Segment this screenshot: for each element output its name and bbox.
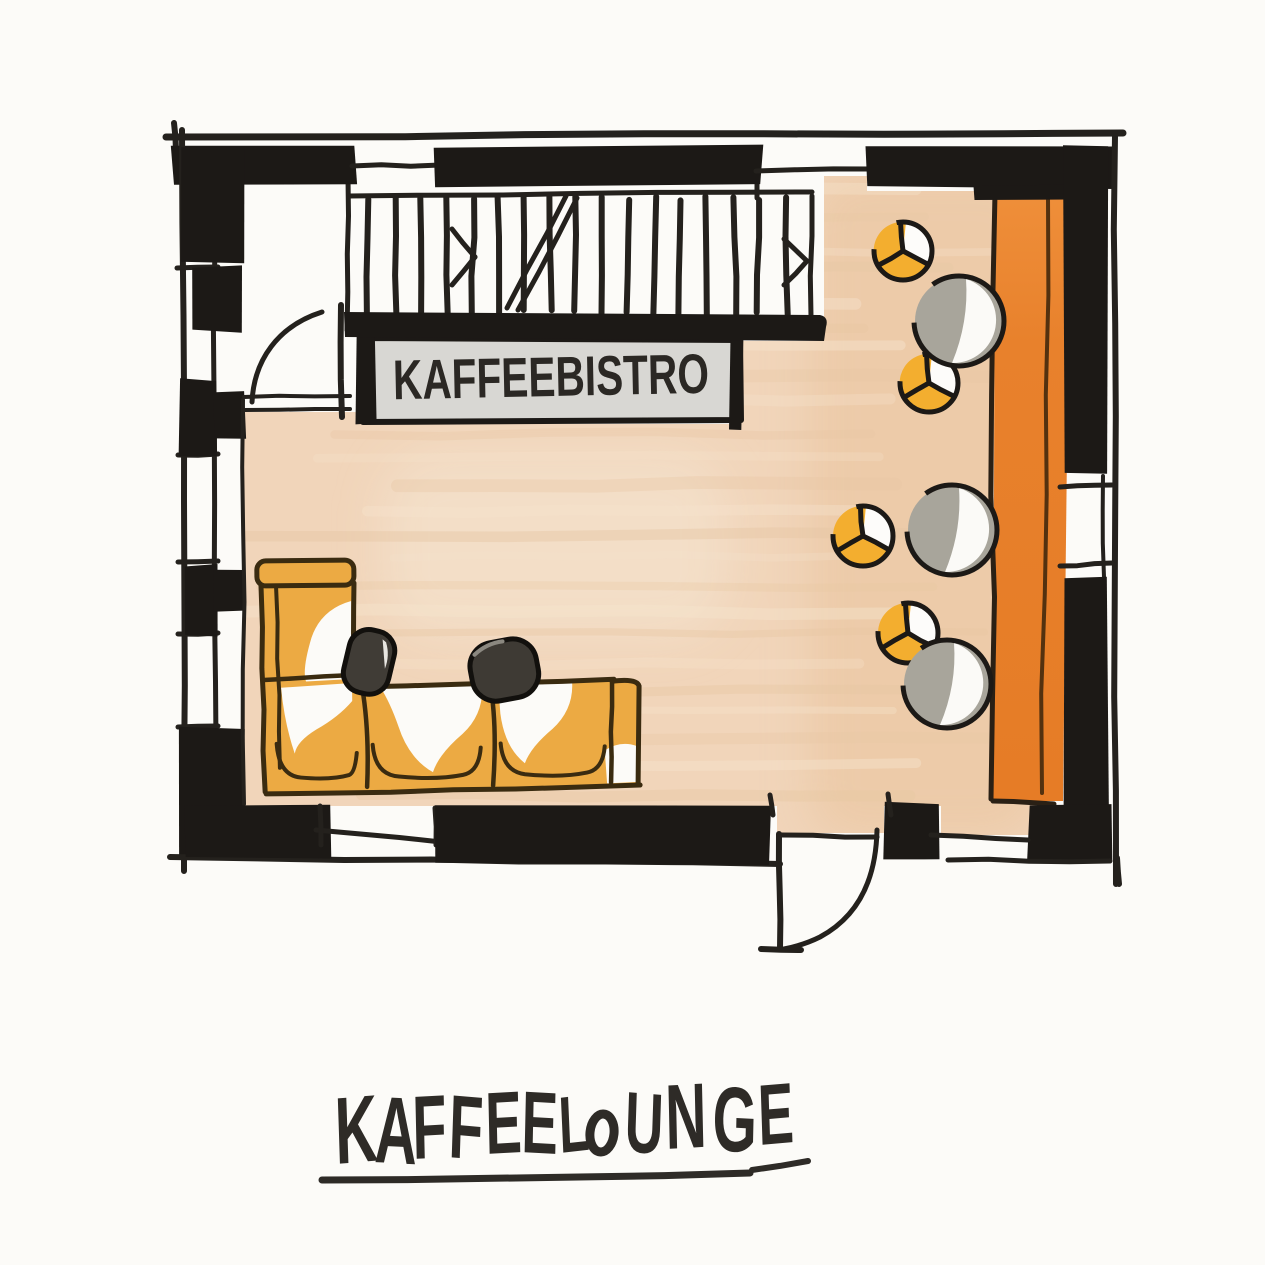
svg-text:N: N [664,1065,707,1169]
svg-text:F: F [411,1077,447,1179]
svg-text:U: U [623,1074,665,1173]
svg-text:K: K [333,1076,379,1185]
svg-text:F: F [447,1077,484,1180]
svg-text:G: G [712,1068,759,1172]
svg-text:E: E [484,1072,523,1173]
svg-text:KAFFEEBISTRO: KAFFEEBISTRO [392,342,709,412]
svg-text:L: L [557,1078,591,1170]
svg-text:E: E [757,1065,796,1164]
svg-text:E: E [521,1072,560,1173]
